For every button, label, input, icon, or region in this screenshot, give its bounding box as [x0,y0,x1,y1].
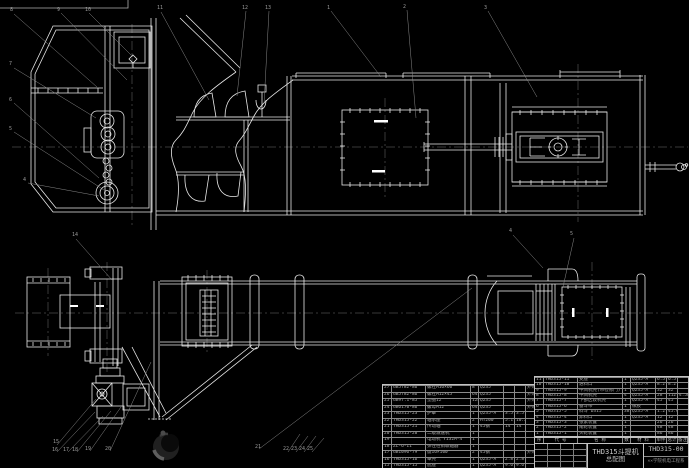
drawing-sheet: 8 9 10 11 12 13 1 2 3 7 6 5 4 14 4 5 15 … [0,0,689,468]
bom-remark [678,432,688,436]
bom-seq: 1 [535,432,544,436]
bom-row: 15 THD315-15 底座 1 Q235-A 9.6 9.6 [383,463,534,468]
item-balloon: 5 [570,232,573,237]
drawing-number: THD315-00 [644,444,688,457]
bom-code: THD315-1 [544,432,578,436]
watermark-logo [153,431,179,461]
item-balloon: 15 [53,440,59,445]
bom-qty: 1 [623,432,631,436]
bom-row: 1 THD315-1 头轮装置 1 86 86 [535,431,688,436]
bom-material: Q235-A [479,464,504,468]
frame-corner [0,0,128,8]
bom-weight-each: 9.6 [504,464,515,468]
item-balloon: 14 [72,233,78,238]
item-balloon: 18 [72,448,78,453]
item-balloon: 9 [57,8,60,13]
middle-casing-section [156,70,643,215]
item-balloon: 10 [85,8,91,13]
item-balloon: 4 [509,229,512,234]
bom-weight-each: 86 [656,432,667,436]
item-balloon: 6 [9,98,12,103]
bom-material [631,432,656,436]
bom-table-assembly: 11 THD315-11 支座 1 Q235-A 6.5 6.5 10 THD3… [534,376,689,437]
lower-view-casing [160,275,637,349]
bom-name: 底座 [426,464,471,468]
tail-takeup-section [424,75,688,215]
item-balloon: 25 [307,447,313,452]
item-balloon: 13 [265,6,271,11]
item-balloon: 16 [52,448,58,453]
signature-grid [535,444,588,468]
item-balloon: 5 [9,127,12,132]
item-balloon: 17 [63,448,69,453]
bom-weight-total: 86 [667,432,678,436]
item-balloon: 23 [291,447,297,452]
item-balloon: 11 [157,6,163,11]
lower-view-head-housing [27,267,122,366]
bom-remark [526,464,534,468]
drawing-subtitle: 总配图 [606,456,626,463]
item-balloon: 1 [327,6,330,11]
upper-view-head-section [31,18,156,230]
bom-table-standard-parts: 27 GB5782-86 螺栓M16×60 8 Q235 外购 26 GB578… [382,384,535,468]
item-balloon: 24 [299,447,305,452]
chain-sprocket-assembly [84,111,124,204]
item-balloon: 20 [105,447,111,452]
bom-weight-total: 9.6 [515,464,526,468]
item-balloon: 21 [255,445,261,450]
bom-seq: 15 [383,464,392,468]
title-cell: THD315斗提机 总配图 [588,444,644,468]
item-balloon: 3 [484,6,487,11]
item-balloon: 12 [242,6,248,11]
organization: ××学院机电工程系 [644,457,688,468]
number-cell: THD315-00 ××学院机电工程系 [644,444,688,468]
item-balloon: 22 [283,447,289,452]
lower-view-tail-boot [485,269,645,356]
bom-name: 头轮装置 [578,432,623,436]
bom-code: THD315-15 [392,464,426,468]
item-balloon: 4 [23,178,26,183]
item-balloon: 8 [10,8,13,13]
bucket-discharge-section [171,15,293,212]
item-balloon: 7 [9,62,12,67]
item-balloon: 19 [85,447,91,452]
item-balloon: 2 [403,5,406,10]
bom-qty: 1 [471,464,479,468]
title-block: THD315斗提机 总配图 THD315-00 ××学院机电工程系 [534,443,689,468]
